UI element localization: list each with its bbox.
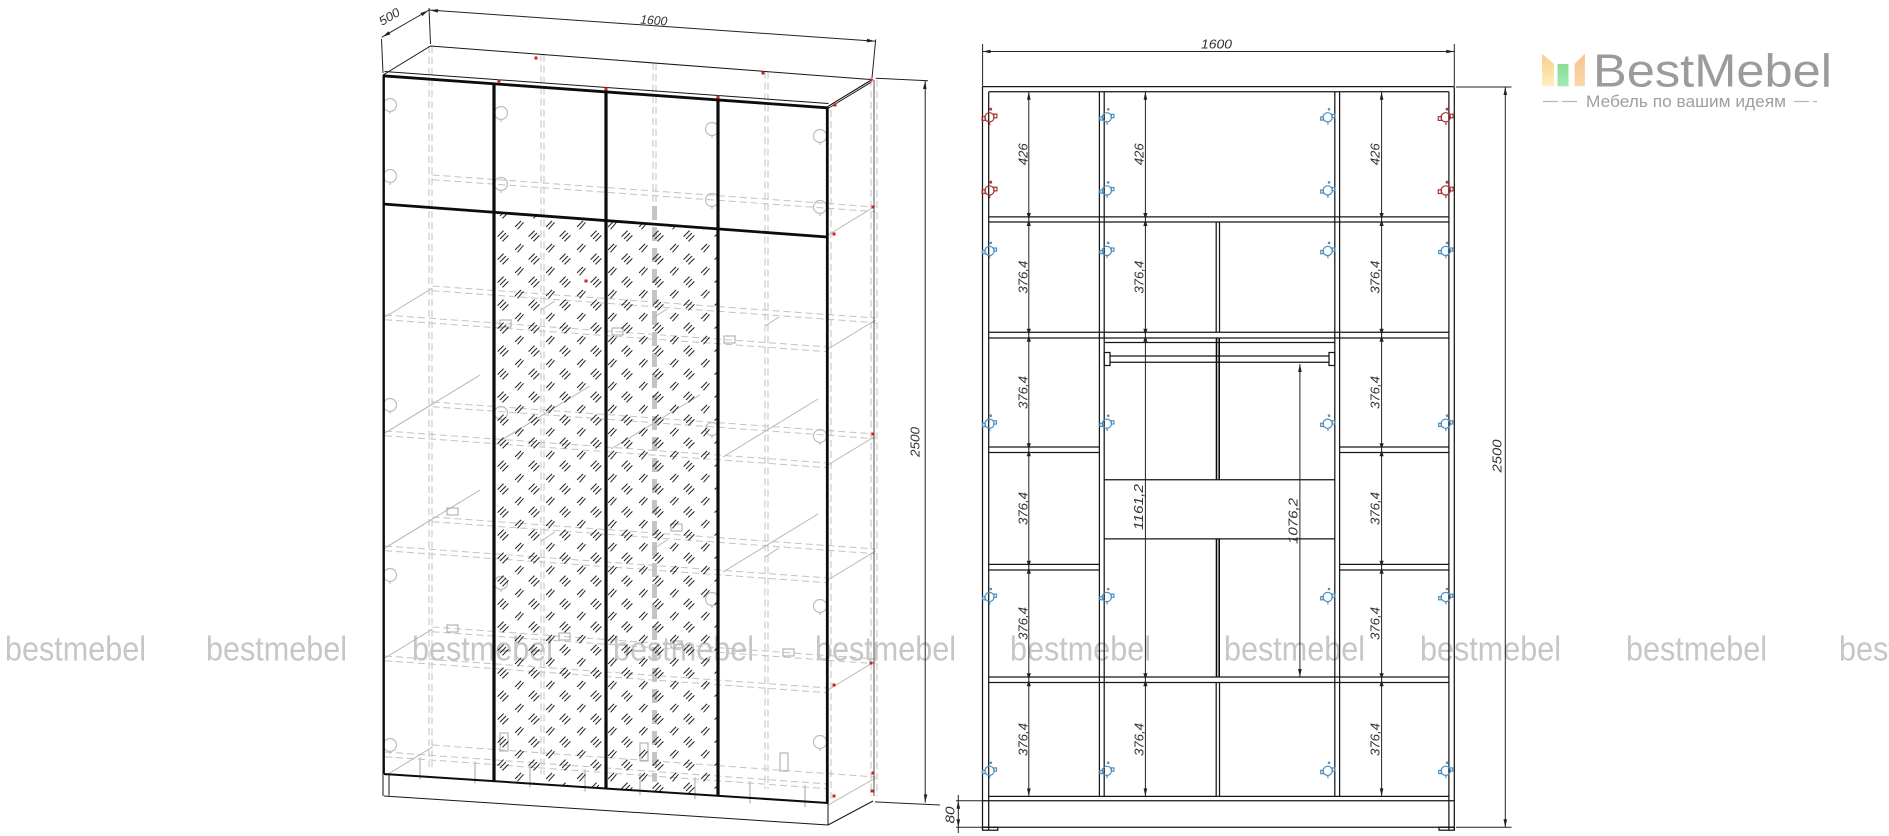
svg-text:Мебель по вашим идеям: Мебель по вашим идеям bbox=[1586, 92, 1786, 111]
svg-text:376,4: 376,4 bbox=[1369, 723, 1383, 756]
svg-text:376,4: 376,4 bbox=[1369, 261, 1383, 294]
svg-text:426: 426 bbox=[1369, 143, 1383, 165]
svg-text:bestmebel: bestmebel bbox=[1420, 631, 1561, 669]
svg-text:bestmebel: bestmebel bbox=[1839, 631, 1889, 669]
svg-text:bestmebel: bestmebel bbox=[206, 631, 347, 669]
svg-text:376,4: 376,4 bbox=[1133, 723, 1147, 756]
svg-text:1600: 1600 bbox=[640, 13, 668, 29]
svg-text:1076,2: 1076,2 bbox=[1287, 498, 1301, 544]
svg-text:376,4: 376,4 bbox=[1369, 376, 1383, 409]
svg-text:376,4: 376,4 bbox=[1133, 261, 1147, 294]
svg-text:376,4: 376,4 bbox=[1017, 261, 1031, 294]
svg-text:376,4: 376,4 bbox=[1017, 376, 1031, 409]
svg-text:500: 500 bbox=[376, 5, 402, 28]
svg-text:BestMebel: BestMebel bbox=[1593, 45, 1832, 97]
svg-text:80: 80 bbox=[944, 806, 958, 823]
svg-text:1600: 1600 bbox=[1201, 37, 1233, 52]
svg-text:bestmebel: bestmebel bbox=[1224, 631, 1365, 669]
svg-text:bestmebel: bestmebel bbox=[815, 631, 956, 669]
svg-text:426: 426 bbox=[1017, 143, 1031, 165]
svg-text:376,4: 376,4 bbox=[1369, 492, 1383, 525]
svg-text:bestmebel: bestmebel bbox=[1626, 631, 1767, 669]
svg-text:376,4: 376,4 bbox=[1017, 607, 1031, 640]
svg-text:2500: 2500 bbox=[1491, 439, 1505, 473]
svg-text:1161,2: 1161,2 bbox=[1132, 484, 1146, 530]
svg-text:426: 426 bbox=[1133, 143, 1147, 165]
svg-text:bestmebel: bestmebel bbox=[1010, 631, 1151, 669]
svg-text:376,4: 376,4 bbox=[1017, 492, 1031, 525]
svg-text:2500: 2500 bbox=[909, 427, 923, 458]
svg-text:376,4: 376,4 bbox=[1369, 607, 1383, 640]
svg-text:bestmebel: bestmebel bbox=[5, 631, 146, 669]
svg-text:376,4: 376,4 bbox=[1017, 723, 1031, 756]
